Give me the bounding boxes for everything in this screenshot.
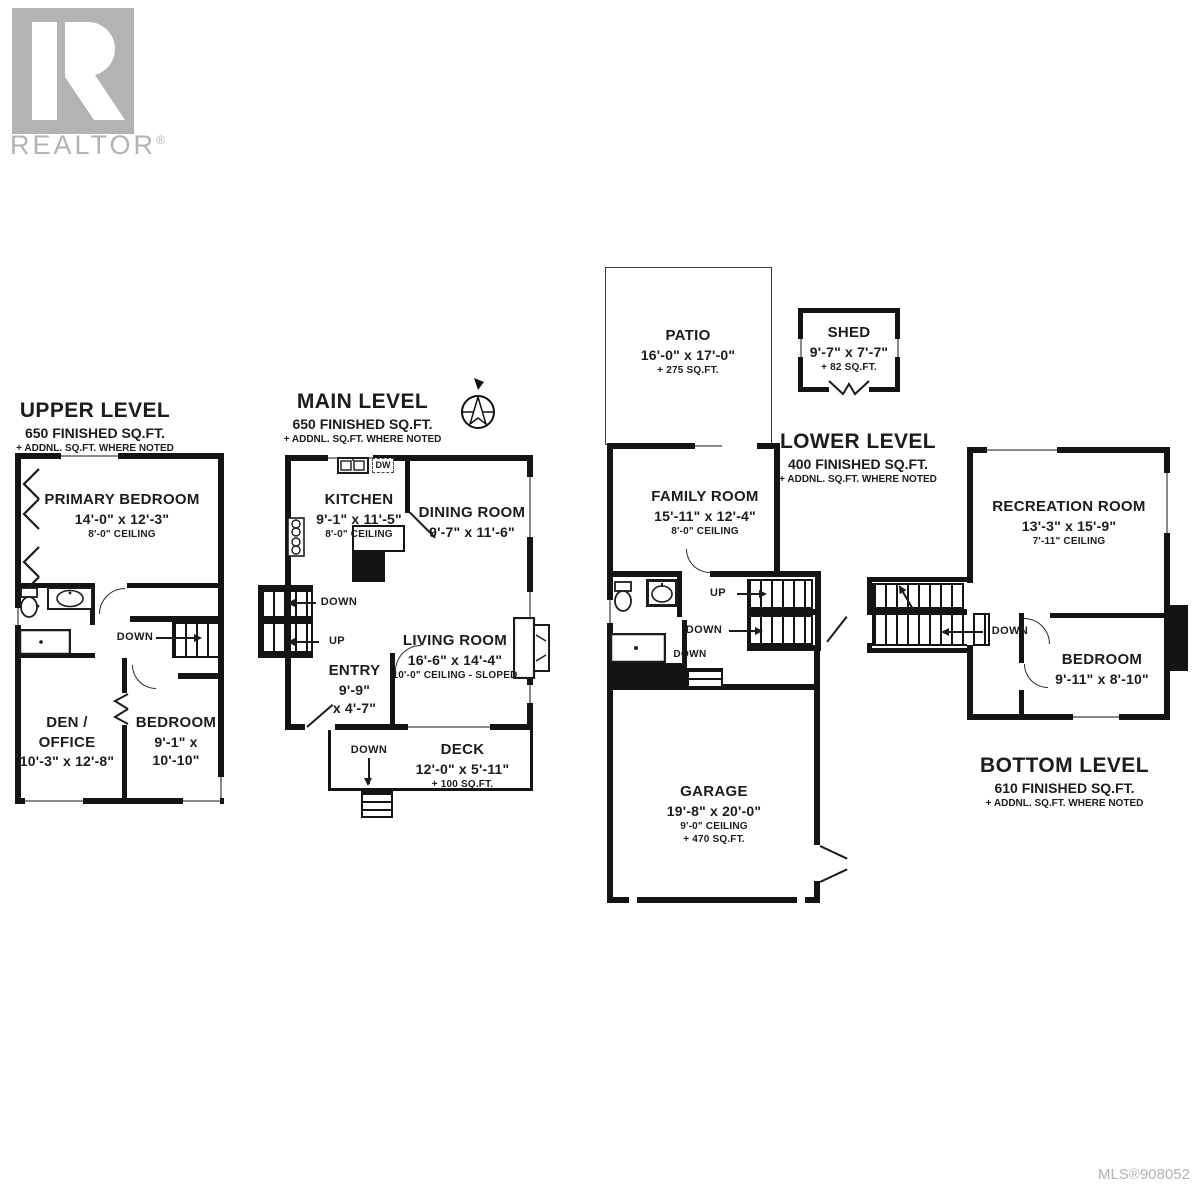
wall bbox=[127, 583, 224, 588]
garage-entry-steps bbox=[687, 668, 723, 690]
stairs-direction-arrow bbox=[289, 641, 319, 643]
door-arc bbox=[686, 549, 710, 573]
main-level-title-block: MAIN LEVEL 650 FINISHED SQ.FT. + ADDNL. … bbox=[275, 388, 450, 446]
bathroom-sink-icon bbox=[47, 587, 93, 610]
kitchen-sink-icon bbox=[337, 457, 369, 474]
wall bbox=[747, 609, 815, 615]
wall bbox=[1019, 690, 1024, 720]
chimney bbox=[1170, 605, 1188, 671]
bathroom-sink-icon bbox=[646, 579, 678, 607]
upper-level-title: UPPER LEVEL bbox=[0, 397, 190, 424]
wall bbox=[607, 688, 613, 903]
compass-north-icon bbox=[456, 376, 500, 434]
patio: PATIO 16'-0" x 17'-0" + 275 SQ.FT. bbox=[605, 267, 772, 445]
stair-opening bbox=[967, 583, 973, 645]
toilet-icon bbox=[613, 581, 633, 613]
door-arc bbox=[132, 665, 156, 689]
room-label-patio: PATIO 16'-0" x 17'-0" + 275 SQ.FT. bbox=[616, 326, 760, 377]
wall bbox=[867, 577, 967, 582]
room-label-entry: ENTRY 9'-9" x 4'-7" bbox=[307, 661, 402, 717]
wall bbox=[258, 653, 313, 658]
door-leaf bbox=[820, 845, 848, 859]
bottom-level-title: BOTTOM LEVEL bbox=[962, 752, 1167, 779]
bathtub-icon bbox=[610, 633, 666, 663]
wall bbox=[285, 455, 291, 730]
stairs-direction-arrow bbox=[368, 758, 370, 784]
floorplan-canvas: REALTOR® UPPER LEVEL 650 FINISHED SQ.FT.… bbox=[0, 0, 1200, 1200]
room-label-dining-room: DINING ROOM 9'-7" x 11'-6" bbox=[402, 503, 542, 541]
stairs-down-label: DOWN bbox=[346, 744, 392, 756]
wall bbox=[530, 730, 533, 791]
stairs-direction-arrow bbox=[943, 631, 983, 633]
realtor-logo-text: REALTOR® bbox=[10, 130, 168, 161]
wall bbox=[967, 714, 1170, 720]
wall-notch bbox=[797, 897, 805, 903]
closet-bifold-door-icon bbox=[21, 468, 41, 530]
wall bbox=[328, 730, 331, 791]
stairs-up-label: UP bbox=[700, 587, 736, 599]
deck: DECK 12'-0" x 5'-11" + 100 SQ.FT. DOWN bbox=[328, 730, 533, 791]
room-label-living-room: LIVING ROOM 16'-6" x 14'-4" 10'-0" CEILI… bbox=[380, 631, 530, 682]
window bbox=[218, 777, 224, 798]
stairs-down-label: DOWN bbox=[665, 649, 715, 660]
door-arc bbox=[99, 588, 125, 614]
wall bbox=[815, 577, 821, 647]
wall bbox=[607, 897, 820, 903]
window bbox=[987, 447, 1057, 453]
room-label-garage: GARAGE 19'-8" x 20'-0" 9'-0" CEILING + 4… bbox=[635, 782, 793, 846]
kitchen-island bbox=[352, 552, 385, 582]
room-label-bedroom-bottom: BEDROOM 9'-11" x 8'-10" bbox=[1038, 650, 1166, 688]
window bbox=[25, 798, 83, 804]
wall bbox=[1050, 613, 1170, 618]
wall bbox=[867, 648, 967, 653]
room-label-deck: DECK 12'-0" x 5'-11" + 100 SQ.FT. bbox=[400, 740, 525, 791]
room-label-recreation-room: RECREATION ROOM 13'-3" x 15'-9" 7'-11" C… bbox=[988, 497, 1150, 548]
stairs-direction-arrow bbox=[737, 593, 765, 595]
bathtub-icon bbox=[19, 629, 71, 655]
room-label-family-room: FAMILY ROOM 15'-11" x 12'-4" 8'-0" CEILI… bbox=[630, 487, 780, 538]
toilet-icon bbox=[19, 587, 39, 619]
stairs-down-label: DOWN bbox=[986, 625, 1034, 637]
stairs-up-label: UP bbox=[319, 635, 355, 647]
mls-number: MLS®908052 bbox=[1040, 1166, 1190, 1183]
room-label-shed: SHED 9'-7" x 7'-7" + 82 SQ.FT. bbox=[803, 323, 895, 374]
wall bbox=[723, 684, 820, 690]
lower-level-title: LOWER LEVEL bbox=[763, 428, 953, 455]
main-level-plan: DW DOWN UP bbox=[285, 455, 533, 730]
wall-notch bbox=[629, 897, 637, 903]
shed: SHED 9'-7" x 7'-7" + 82 SQ.FT. bbox=[798, 308, 900, 392]
stairs-direction-arrow bbox=[729, 630, 761, 632]
wall bbox=[258, 585, 313, 590]
wall bbox=[607, 571, 682, 577]
deck-stairs bbox=[361, 791, 393, 818]
stairs-up bbox=[872, 583, 964, 609]
main-level-title: MAIN LEVEL bbox=[275, 388, 450, 415]
registered-mark: ® bbox=[156, 133, 168, 147]
wall bbox=[122, 658, 127, 693]
window bbox=[895, 339, 900, 357]
stairs-direction-arrow bbox=[289, 602, 316, 604]
wall bbox=[178, 673, 224, 679]
window bbox=[183, 798, 220, 804]
wall bbox=[607, 663, 687, 690]
lower-level-title-block: LOWER LEVEL 400 FINISHED SQ.FT. + ADDNL.… bbox=[763, 428, 953, 486]
shed-door-icon bbox=[827, 380, 871, 396]
dishwasher: DW bbox=[372, 458, 394, 473]
stairs-down-label: DOWN bbox=[115, 631, 155, 643]
wall bbox=[710, 571, 821, 577]
window bbox=[1164, 473, 1170, 533]
door-gap bbox=[867, 615, 872, 643]
stairs-down-label: DOWN bbox=[680, 624, 728, 636]
window bbox=[527, 592, 533, 620]
upper-level-title-block: UPPER LEVEL 650 FINISHED SQ.FT. + ADDNL.… bbox=[0, 397, 190, 455]
wall bbox=[122, 725, 127, 804]
window-sliding-door bbox=[408, 724, 490, 730]
wall bbox=[747, 645, 821, 651]
wall bbox=[258, 618, 313, 622]
stove-icon bbox=[287, 517, 305, 557]
garage-side-door-gap bbox=[814, 845, 820, 881]
window bbox=[695, 443, 722, 449]
door-leaf bbox=[820, 868, 848, 882]
room-label-den-office: DEN / OFFICE 10'-3" x 12'-8" bbox=[17, 713, 117, 770]
room-label-kitchen: KITCHEN 9'-1" x 11'-5" 8'-0" CEILING bbox=[313, 490, 405, 541]
realtor-logo bbox=[12, 8, 134, 134]
door-leaf bbox=[826, 616, 847, 642]
wall bbox=[872, 609, 967, 613]
patio-door-gap bbox=[722, 443, 757, 449]
wall bbox=[130, 616, 224, 622]
room-label-primary-bedroom: PRIMARY BEDROOM 14'-0" x 12'-3" 8'-0" CE… bbox=[42, 490, 202, 541]
stairs-direction-arrow bbox=[156, 637, 200, 639]
realtor-logo-icon bbox=[12, 8, 134, 134]
room-label-bedroom-upper: BEDROOM 9'-1" x 10'-10" bbox=[130, 713, 222, 769]
stairs-down-label: DOWN bbox=[317, 596, 361, 608]
window bbox=[527, 685, 533, 703]
upper-level-plan: DOWN PRIMARY BEDROOM 14'-0" x 12'-3" 8'-… bbox=[15, 453, 224, 804]
bottom-level-title-block: BOTTOM LEVEL 610 FINISHED SQ.FT. + ADDNL… bbox=[962, 752, 1167, 810]
window bbox=[1073, 714, 1119, 720]
